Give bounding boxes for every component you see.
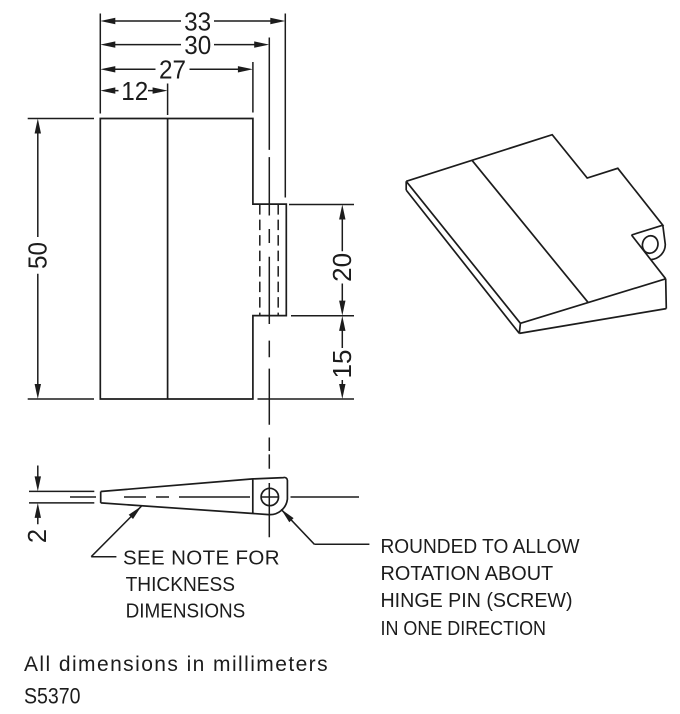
svg-text:50: 50 bbox=[25, 242, 53, 269]
svg-text:27: 27 bbox=[159, 57, 186, 85]
svg-text:IN ONE DIRECTION: IN ONE DIRECTION bbox=[381, 617, 547, 640]
svg-text:S5370: S5370 bbox=[24, 683, 81, 708]
svg-text:All dimensions in millimeters: All dimensions in millimeters bbox=[24, 653, 328, 676]
svg-text:ROTATION ABOUT: ROTATION ABOUT bbox=[381, 562, 554, 585]
svg-text:THICKNESS: THICKNESS bbox=[126, 573, 235, 596]
svg-text:2: 2 bbox=[24, 529, 52, 543]
svg-text:SEE NOTE FOR: SEE NOTE FOR bbox=[123, 547, 280, 570]
svg-text:ROUNDED TO ALLOW: ROUNDED TO ALLOW bbox=[381, 535, 581, 558]
svg-text:30: 30 bbox=[184, 32, 211, 60]
svg-text:DIMENSIONS: DIMENSIONS bbox=[126, 599, 246, 622]
svg-text:HINGE PIN (SCREW): HINGE PIN (SCREW) bbox=[381, 589, 573, 612]
svg-text:12: 12 bbox=[121, 78, 148, 106]
svg-text:15: 15 bbox=[329, 350, 357, 379]
svg-text:20: 20 bbox=[329, 253, 357, 282]
